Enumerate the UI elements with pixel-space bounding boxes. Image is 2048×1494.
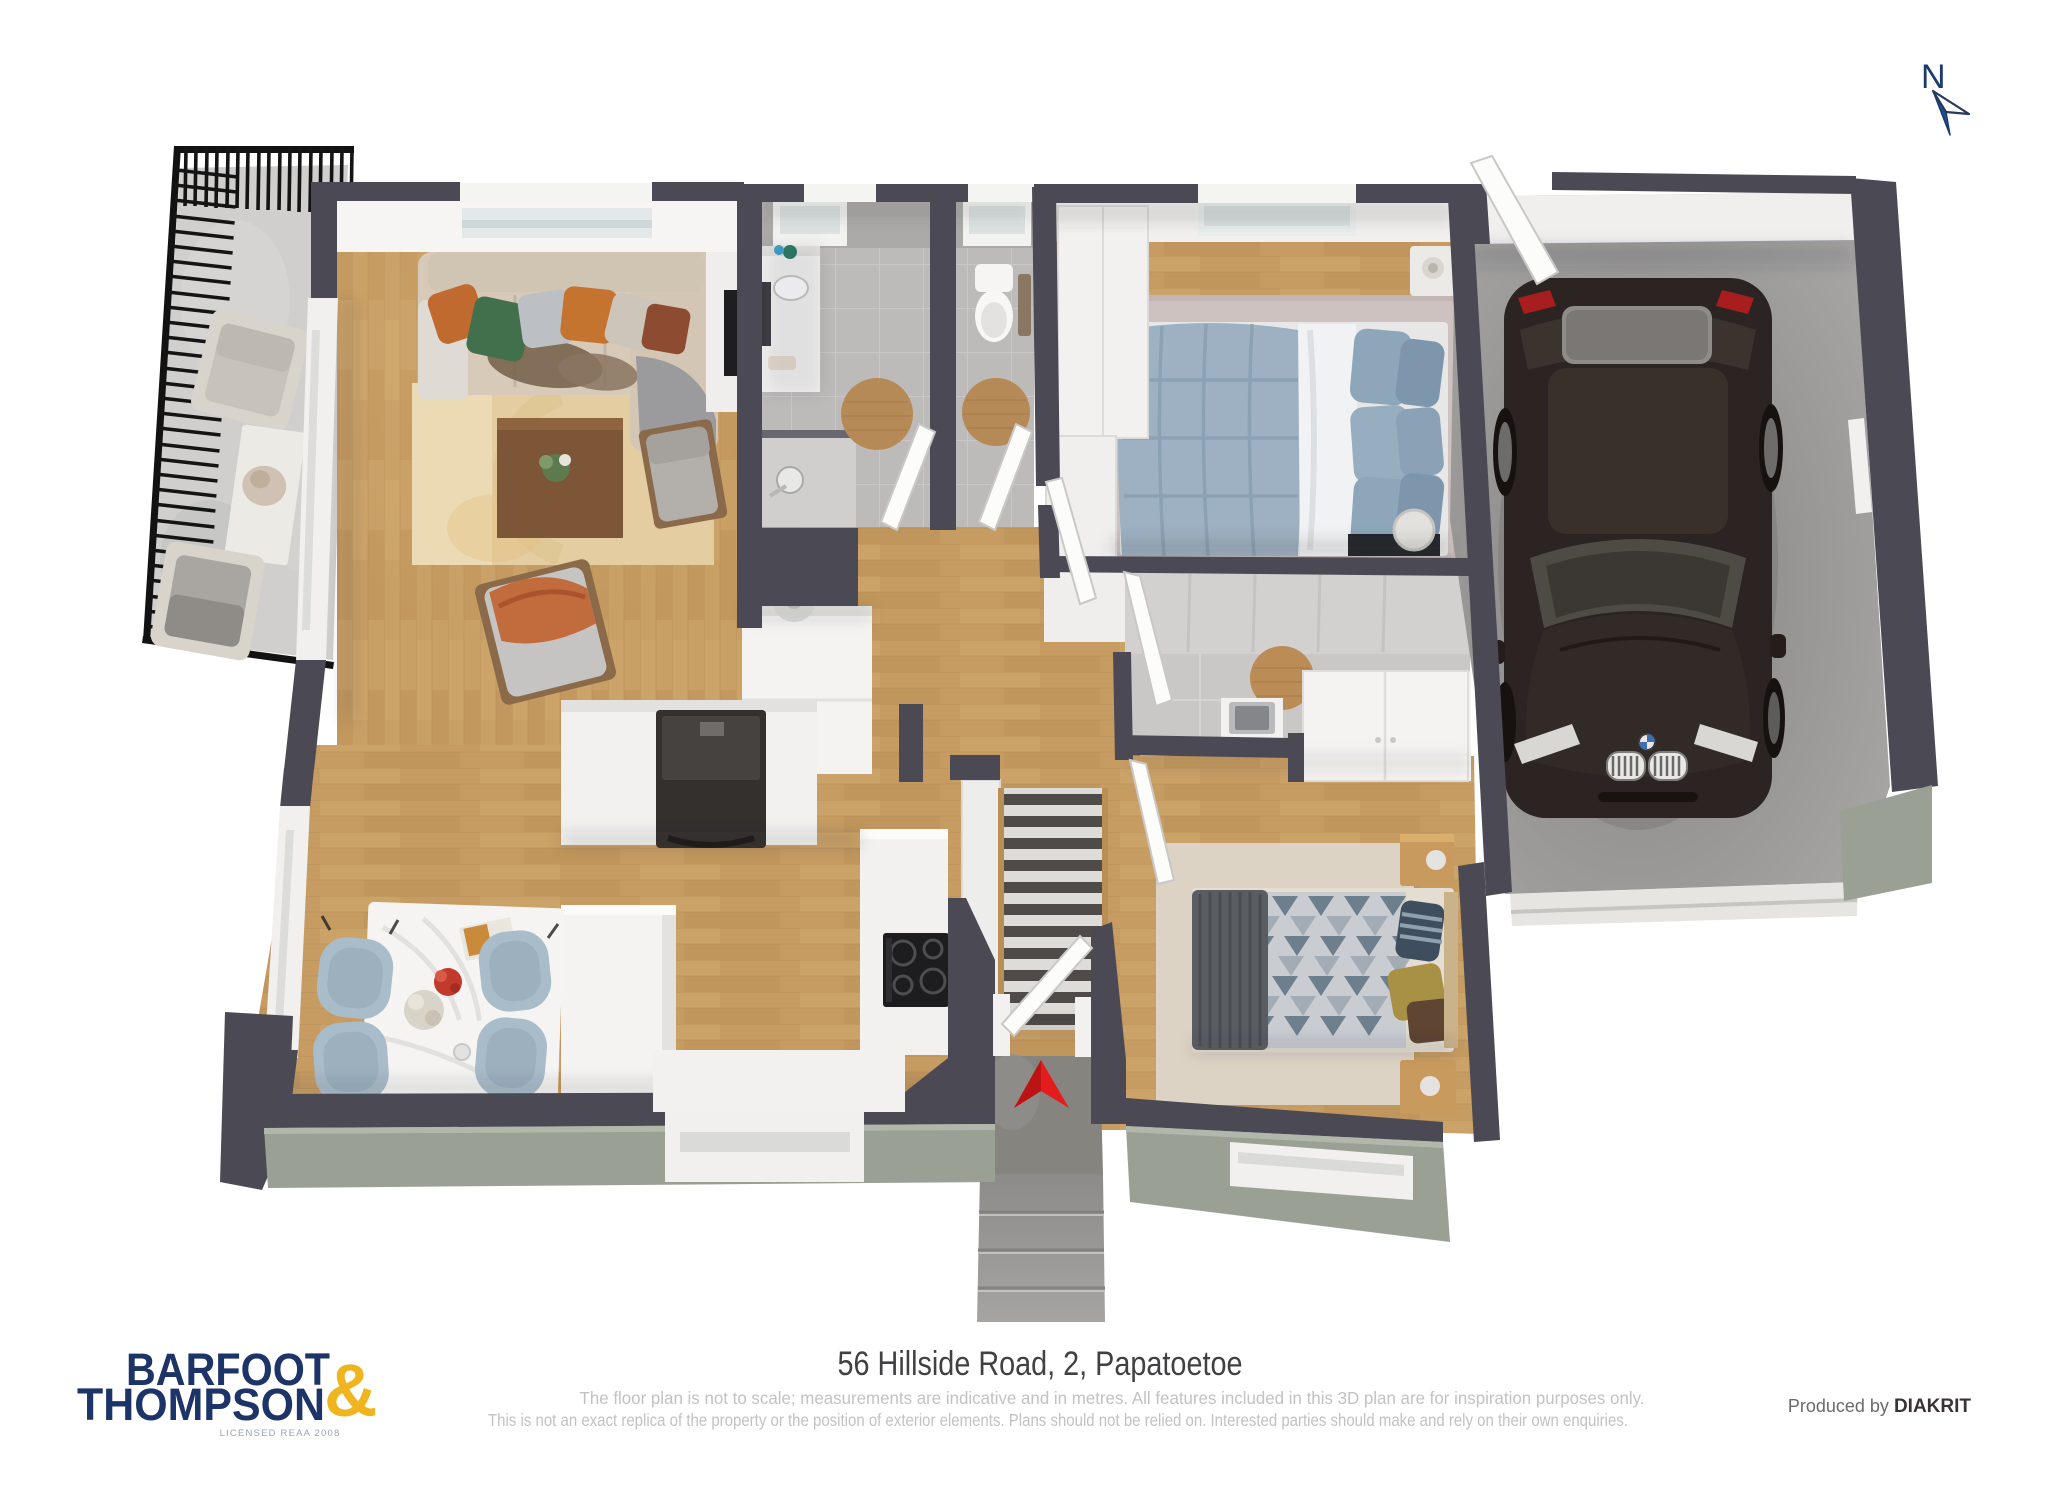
svg-text:LICENSED REAA 2008: LICENSED REAA 2008 bbox=[220, 1428, 341, 1439]
svg-text:The floor plan is not to scale: The floor plan is not to scale; measurem… bbox=[580, 1388, 1645, 1408]
svg-text:This is not an exact replica o: This is not an exact replica of the prop… bbox=[488, 1410, 1628, 1430]
svg-text:THOMPSON: THOMPSON bbox=[77, 1379, 325, 1430]
svg-text:56 Hillside Road, 2, Papatoeto: 56 Hillside Road, 2, Papatoetoe bbox=[838, 1345, 1243, 1383]
svg-text:&: & bbox=[324, 1349, 377, 1432]
svg-text:Produced by DIAKRIT: Produced by DIAKRIT bbox=[1788, 1396, 1972, 1417]
